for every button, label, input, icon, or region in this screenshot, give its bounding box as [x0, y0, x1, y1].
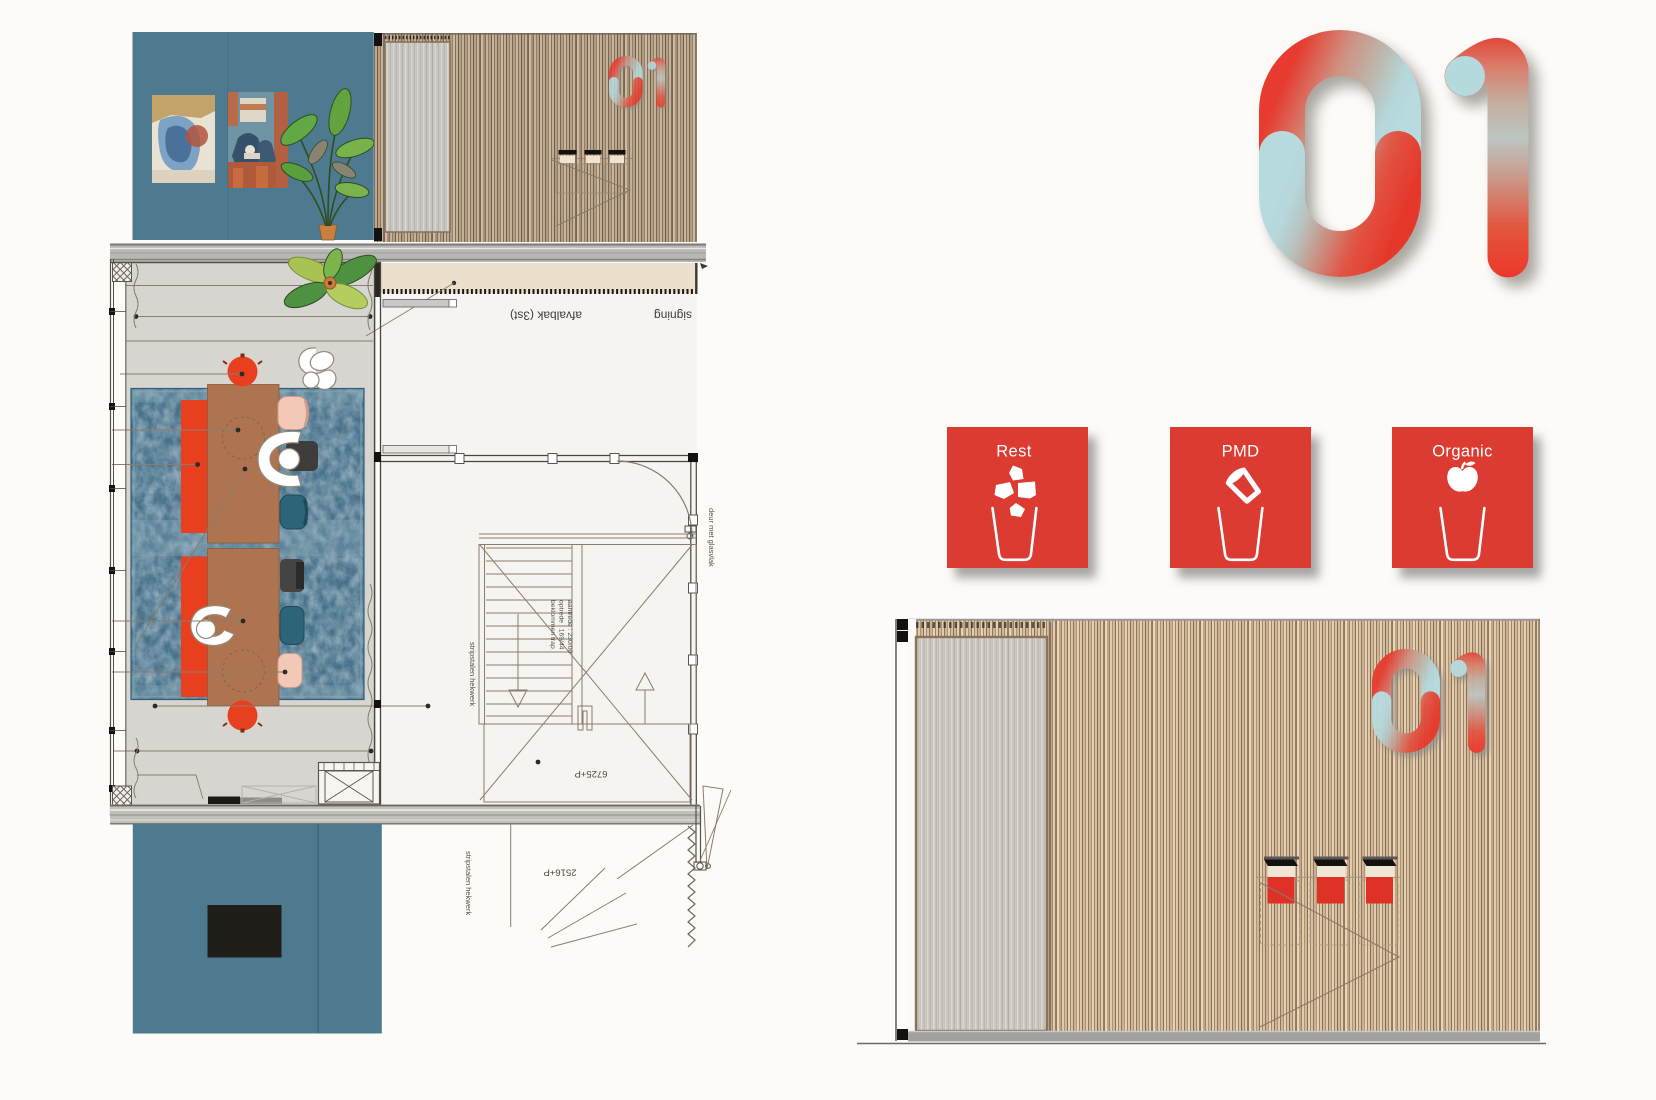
svg-text:signing: signing [654, 309, 692, 323]
svg-text:stripstalen hekwerk: stripstalen hekwerk [468, 642, 477, 706]
svg-text:2516+P: 2516+P [543, 867, 576, 878]
svg-text:PMD: PMD [1222, 443, 1260, 461]
svg-text:6725+P: 6725+P [574, 768, 607, 779]
svg-text:beklommen trapoptrede : 169/44: beklommen trapoptrede : 169/44aantrede :… [549, 600, 573, 654]
svg-text:stripstalen hekwerk: stripstalen hekwerk [464, 851, 473, 915]
svg-text:Organic: Organic [1432, 443, 1493, 461]
svg-text:afvalbak (3st): afvalbak (3st) [510, 309, 582, 323]
svg-text:Rest: Rest [996, 443, 1032, 461]
svg-text:deur met glasvlak: deur met glasvlak [707, 508, 716, 567]
